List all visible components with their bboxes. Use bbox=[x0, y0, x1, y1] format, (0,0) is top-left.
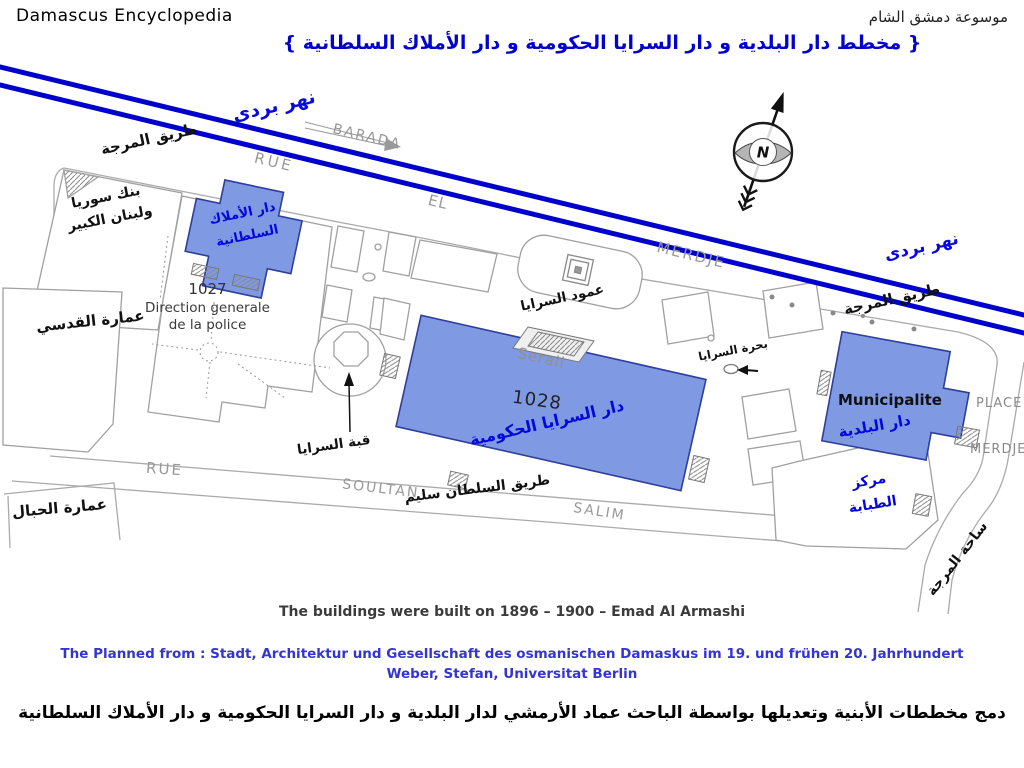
saraya-dome-octagon bbox=[334, 332, 368, 366]
police-label: Direction generale de la police bbox=[130, 300, 285, 334]
publisher-arabic: موسوعة دمشق الشام bbox=[869, 9, 1008, 26]
credit-arabic: دمج مخططات الأبنية وتعديلها بواسطة الباح… bbox=[0, 704, 1024, 724]
source-line1: The Planned from : Stadt, Architektur un… bbox=[0, 647, 1024, 663]
police-label-line2: de la police bbox=[130, 317, 285, 334]
police-number: 1027 bbox=[140, 281, 275, 298]
medical-center-label: مركز الطبابة bbox=[835, 465, 908, 522]
saraya-pool bbox=[724, 365, 738, 374]
source-line2: Weber, Stefan, Universitat Berlin bbox=[0, 667, 1024, 683]
map-parcel bbox=[763, 282, 823, 338]
pool-arrowhead bbox=[737, 365, 748, 375]
map-page: N Damascus Encyclopedia موسوعة دمشق الشا… bbox=[0, 0, 1024, 768]
brand-title: Damascus Encyclopedia bbox=[16, 7, 233, 27]
police-label-line1: Direction generale bbox=[130, 300, 285, 317]
municipality-name-label: Municipalite bbox=[838, 392, 942, 409]
rue-label-bottom: RUE bbox=[145, 460, 183, 480]
map-parcel bbox=[380, 298, 410, 340]
compass-rose: N bbox=[734, 91, 792, 212]
map-dot bbox=[363, 273, 375, 281]
compass-north-label: N bbox=[757, 144, 770, 162]
saraya-column-monument bbox=[563, 255, 594, 286]
built-caption: The buildings were built on 1896 – 1900 … bbox=[0, 604, 1024, 620]
map-parcel bbox=[662, 292, 714, 344]
map-dot bbox=[708, 335, 714, 341]
map-parcel bbox=[742, 389, 796, 439]
map-title-arabic: { مخطط دار البلدية و دار السرايا الحكومي… bbox=[192, 33, 1012, 55]
map-dot bbox=[375, 244, 381, 250]
map-parcel bbox=[383, 232, 416, 276]
merdje-place-label: MERDJE' bbox=[970, 443, 1024, 458]
map-parcel bbox=[411, 240, 497, 292]
place-label: PLACE bbox=[976, 397, 1022, 412]
map-parcel bbox=[322, 285, 352, 322]
map-parcel bbox=[331, 226, 364, 272]
